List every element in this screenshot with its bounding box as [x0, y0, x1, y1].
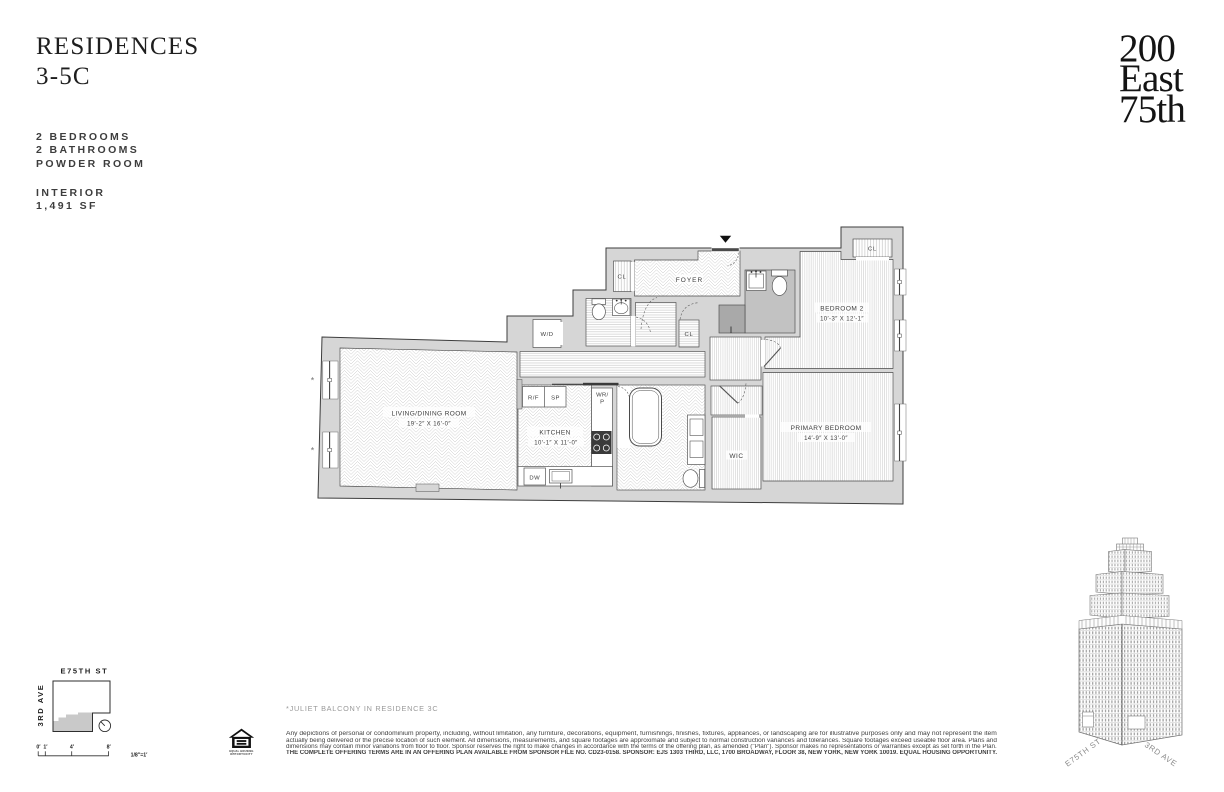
svg-text:14′-9″ X 13′-0″: 14′-9″ X 13′-0″	[804, 436, 848, 442]
svg-text:R/F: R/F	[528, 396, 539, 402]
svg-text:E75TH ST: E75TH ST	[1063, 736, 1102, 768]
svg-text:OPPORTUNITY: OPPORTUNITY	[230, 752, 253, 756]
svg-text:P: P	[600, 400, 604, 406]
svg-text:BEDROOM 2: BEDROOM 2	[820, 306, 864, 313]
svg-text:SP: SP	[551, 396, 560, 402]
svg-text:10′-1″ X 11′-0″: 10′-1″ X 11′-0″	[534, 441, 578, 447]
svg-text:*: *	[311, 446, 315, 456]
svg-text:CL: CL	[868, 247, 877, 253]
svg-text:LIVING/DINING ROOM: LIVING/DINING ROOM	[391, 411, 466, 418]
svg-text:1′: 1′	[43, 745, 48, 751]
svg-text:CL: CL	[685, 332, 694, 338]
svg-text:0′: 0′	[36, 745, 41, 751]
svg-text:3RD AVE: 3RD AVE	[1143, 740, 1179, 768]
svg-text:19′-2″ X 16′-0″: 19′-2″ X 16′-0″	[407, 422, 451, 428]
svg-text:FOYER: FOYER	[676, 277, 703, 284]
svg-text:CL: CL	[618, 275, 627, 281]
svg-text:DW: DW	[529, 476, 540, 482]
svg-text:1/8″=1′: 1/8″=1′	[131, 753, 149, 759]
svg-text:3RD AVE: 3RD AVE	[36, 684, 45, 727]
svg-text:PRIMARY BEDROOM: PRIMARY BEDROOM	[791, 425, 862, 432]
svg-text:4′: 4′	[70, 745, 75, 751]
svg-text:E75TH ST: E75TH ST	[61, 667, 109, 676]
svg-text:WR/: WR/	[596, 393, 608, 399]
svg-text:KITCHEN: KITCHEN	[539, 430, 570, 437]
svg-text:WIC: WIC	[729, 453, 743, 460]
svg-text:*: *	[311, 376, 315, 386]
svg-text:10′-3″ X 12′-1″: 10′-3″ X 12′-1″	[820, 317, 864, 323]
svg-text:8′: 8′	[107, 745, 112, 751]
svg-text:W/D: W/D	[541, 332, 554, 338]
